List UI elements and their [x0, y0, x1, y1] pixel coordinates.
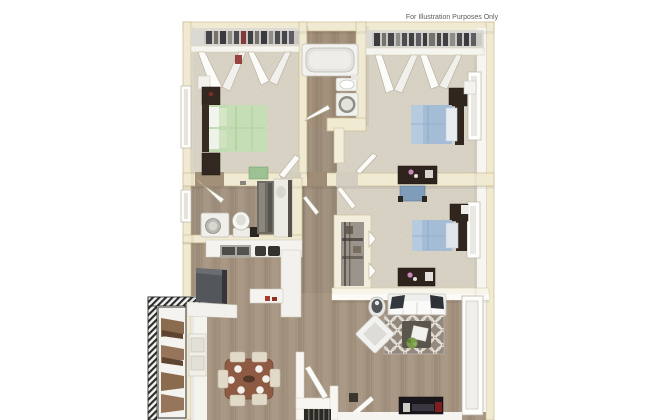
svg-text:For Illustration Purposes Only: For Illustration Purposes Only: [406, 14, 499, 21]
